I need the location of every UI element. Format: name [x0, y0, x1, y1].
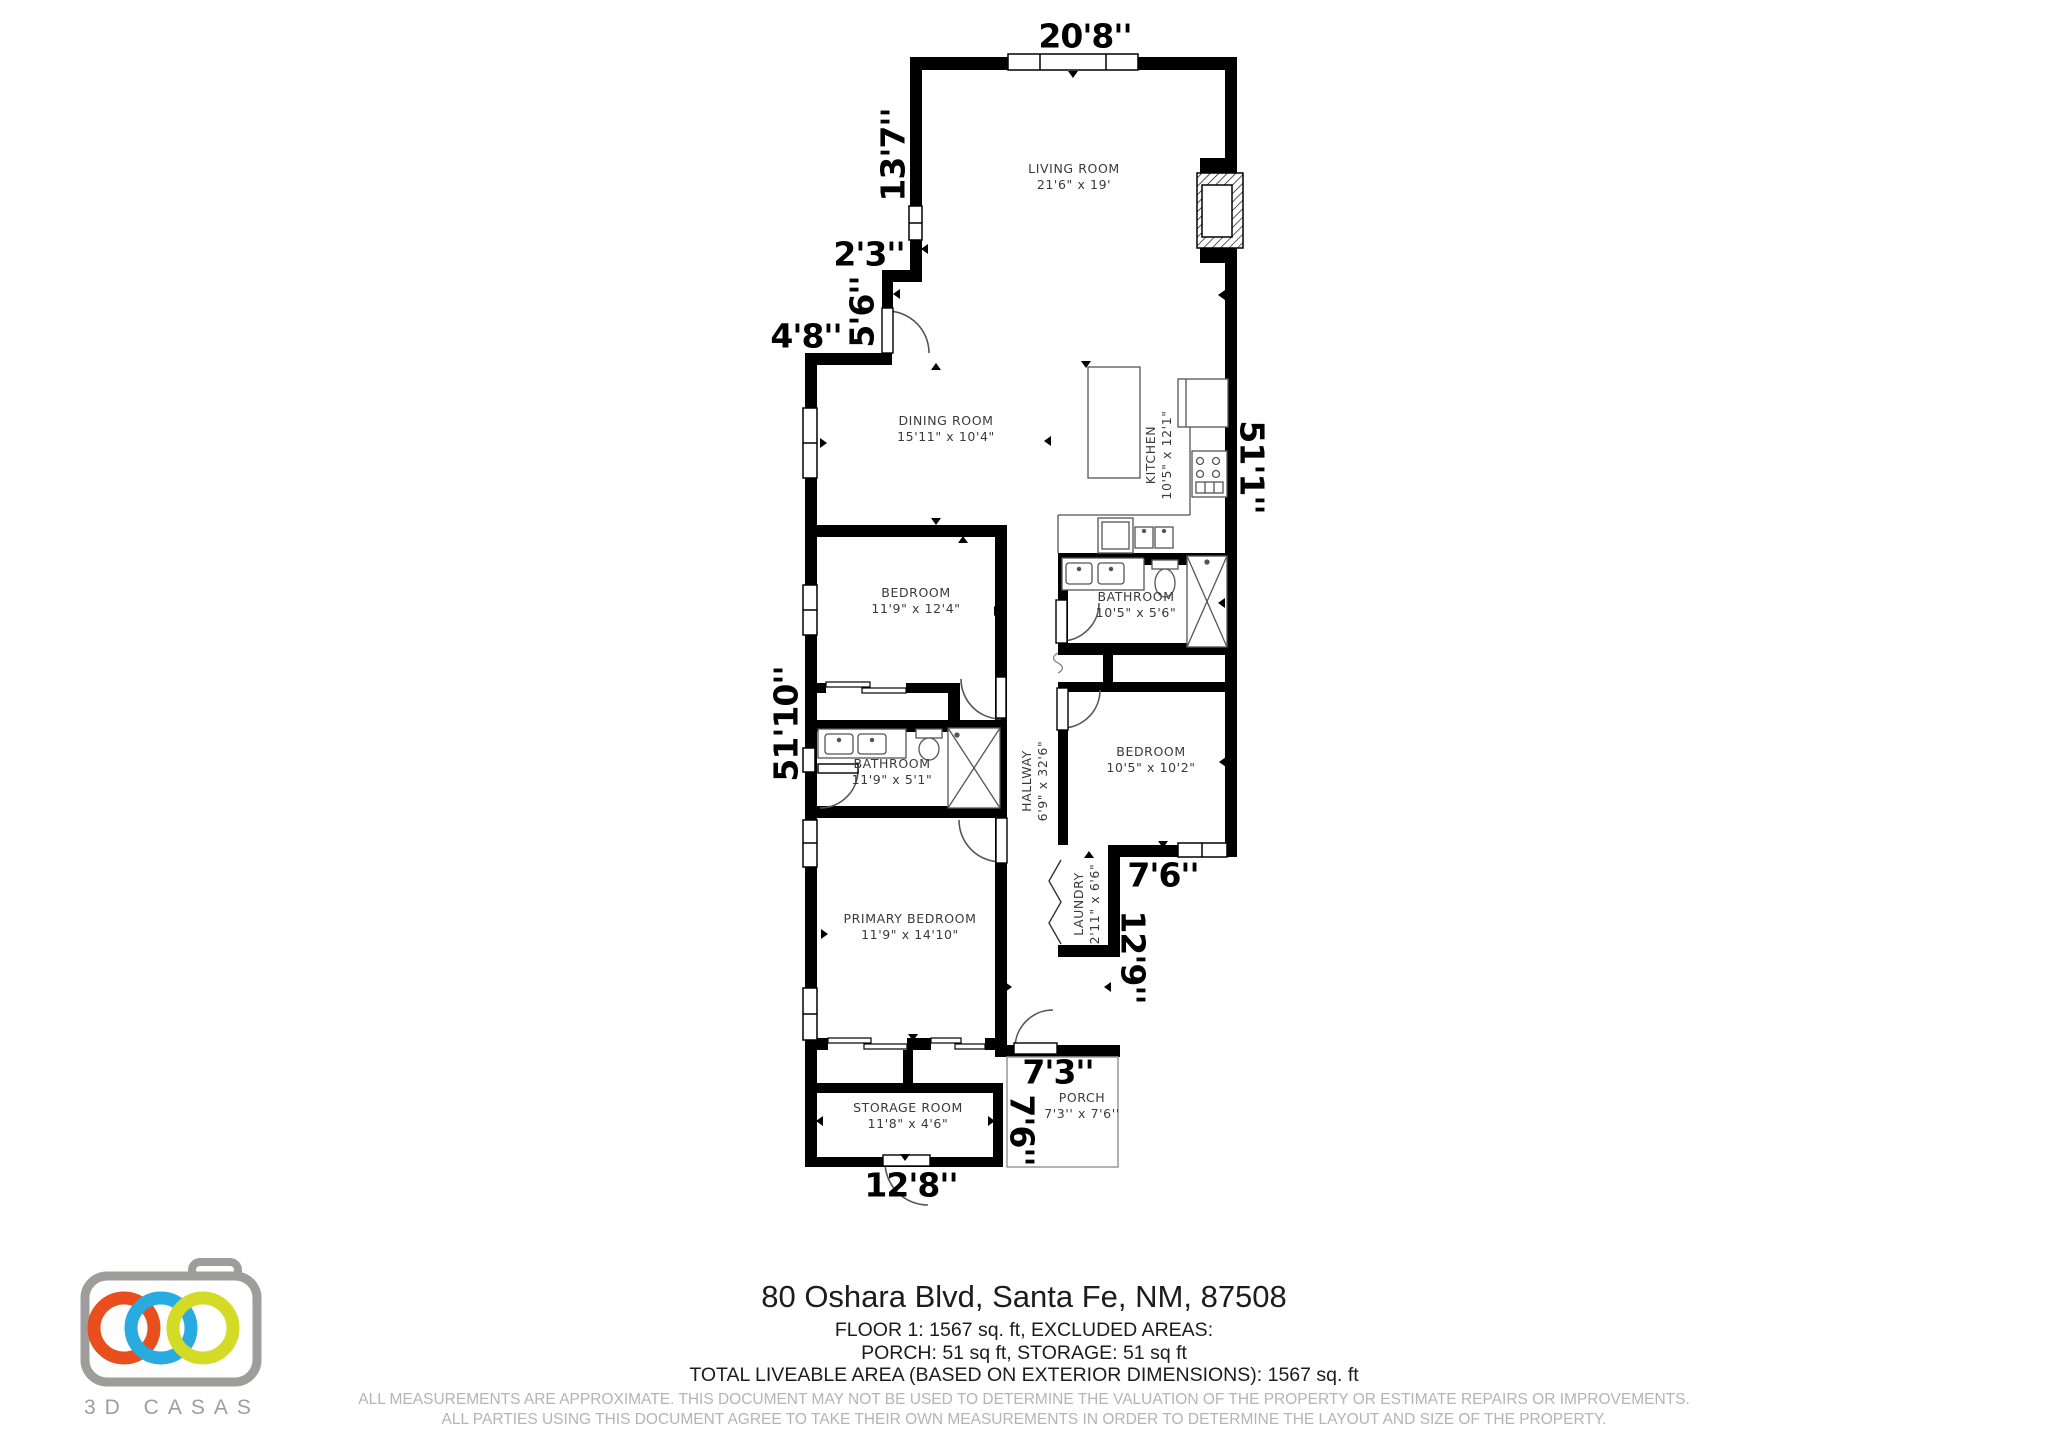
room-dimensions: 10'5" x 10'2"	[1106, 760, 1195, 775]
plan-shape	[1066, 563, 1092, 584]
brand-name: 3D CASAS	[84, 1396, 304, 1420]
wall-storage-top	[805, 1083, 1003, 1093]
room-name: PRIMARY BEDROOM	[844, 911, 977, 926]
dimension-label: 2'3''	[833, 235, 904, 274]
plan-shape	[1102, 522, 1129, 549]
plan-shape	[955, 1044, 985, 1049]
plan-shape	[955, 733, 959, 737]
wall-bedroom3-top	[1058, 682, 1227, 692]
plan-shape	[828, 1038, 871, 1043]
window-living-left	[909, 206, 922, 240]
stove	[1192, 451, 1227, 497]
dimension-label: 13'7''	[874, 108, 913, 201]
tick-arrow-icon	[821, 929, 828, 939]
camera-icon	[85, 1262, 257, 1382]
wall-closet-divider	[948, 683, 960, 725]
tick-arrow-icon	[931, 518, 941, 525]
room-label: LAUNDRY2'11" x 6'6"	[1071, 864, 1102, 945]
plan-shape	[1008, 54, 1138, 70]
plan-shape	[1197, 458, 1204, 465]
wall-break-mark	[1054, 653, 1063, 673]
room-dimensions: 11'9" x 14'10"	[861, 927, 959, 942]
dimension-label: 12'9''	[1114, 910, 1153, 1003]
plan-shape	[825, 734, 853, 754]
dimension-label: 12'8''	[864, 1166, 957, 1205]
plan-shape	[1109, 567, 1112, 570]
fireplace	[1197, 173, 1243, 248]
tick-arrow-icon	[816, 1116, 823, 1126]
window-living-top	[1008, 54, 1138, 70]
wall-storage-right	[993, 1083, 1003, 1167]
tick-arrow-icon	[921, 244, 928, 254]
tick-arrow-icon	[1104, 982, 1111, 992]
room-dimensions: 11'9" x 12'4"	[871, 601, 960, 616]
dimension-label: 20'8''	[1038, 17, 1131, 56]
room-dimensions: 11'8" x 4'6"	[868, 1116, 949, 1131]
plan-shape	[1163, 530, 1166, 533]
wall-closet2-divider	[903, 1050, 913, 1083]
room-dimensions: 21'6" x 19'	[1037, 177, 1111, 192]
room-name: BATHROOM	[853, 756, 930, 771]
plan-shape	[1205, 560, 1209, 564]
room-name: KITCHEN	[1143, 426, 1158, 484]
kitchen-sink	[1135, 527, 1173, 548]
room-name: BEDROOM	[1116, 744, 1185, 759]
dimension-label: 5'6''	[843, 276, 882, 347]
floorplan-page: LIVING ROOM21'6" x 19'DINING ROOM15'11" …	[0, 0, 2048, 1449]
room-dimensions: 10'5" x 12'1"	[1159, 410, 1174, 499]
plan-shape	[1202, 185, 1232, 237]
room-dimensions: 6'9" x 32'6"	[1035, 741, 1050, 822]
dishwasher	[1098, 518, 1133, 553]
room-dimensions: 7'3'' x 7'6''	[1044, 1106, 1120, 1121]
room-label: PRIMARY BEDROOM11'9" x 14'10"	[844, 911, 977, 942]
kitchen-island	[1088, 367, 1140, 478]
wall-dining-bedroom	[805, 525, 1007, 537]
room-name: BEDROOM	[881, 585, 950, 600]
dimension-label: 4'8''	[770, 317, 841, 356]
plan-shape	[1057, 688, 1068, 730]
plan-shape	[959, 820, 1001, 862]
tick-arrow-icon	[1044, 436, 1051, 446]
plan-shape	[882, 308, 893, 353]
bathroom1-door	[1056, 600, 1099, 643]
bedroom2-door	[961, 677, 1006, 719]
dimension-label: 7'3''	[1022, 1053, 1093, 1092]
plan-shape	[916, 729, 942, 738]
plan-shape	[1213, 471, 1220, 478]
tick-arrow-icon	[1005, 982, 1012, 992]
plan-shape	[837, 738, 840, 741]
sink	[1098, 563, 1124, 584]
floorplan-drawing: LIVING ROOM21'6" x 19'DINING ROOM15'11" …	[0, 0, 2048, 1449]
laundry-bifold-door	[1049, 860, 1061, 944]
tick-arrow-icon	[958, 536, 968, 543]
window-bedroom2-left	[803, 585, 817, 635]
plan-shape	[1197, 471, 1204, 478]
tick-arrow-icon	[820, 438, 827, 448]
window-primary-left-2	[803, 988, 817, 1040]
refrigerator	[1178, 379, 1228, 427]
plan-shape	[1152, 560, 1178, 569]
tick-arrow-icon	[931, 363, 941, 370]
tick-arrow-icon	[893, 289, 900, 299]
plan-shape	[996, 677, 1006, 718]
room-name: PORCH	[1059, 1090, 1106, 1105]
plan-shape	[1213, 458, 1220, 465]
tick-arrow-icon	[1219, 757, 1226, 767]
room-label: STORAGE ROOM11'8" x 4'6"	[853, 1100, 963, 1131]
room-label: BATHROOM11'9" x 5'1"	[852, 756, 933, 787]
tick-arrow-icon	[1084, 851, 1094, 858]
plan-shape	[870, 738, 873, 741]
fireplace-stub-bottom	[1200, 248, 1237, 263]
room-name: HALLWAY	[1019, 750, 1034, 812]
room-name: STORAGE ROOM	[853, 1100, 963, 1115]
room-label: BEDROOM10'5" x 10'2"	[1106, 744, 1195, 775]
room-dimensions: 2'11" x 6'6"	[1087, 864, 1102, 945]
closet-slider-primary-left	[828, 1036, 907, 1050]
plan-shape	[862, 688, 906, 693]
primary-bedroom-door	[959, 818, 1007, 863]
tick-arrow-icon	[1218, 290, 1225, 300]
plan-shape	[996, 818, 1007, 863]
room-name: BATHROOM	[1097, 589, 1174, 604]
plan-shape	[826, 682, 870, 687]
dimension-label: 51'1''	[1233, 420, 1272, 513]
room-name: LIVING ROOM	[1028, 161, 1120, 176]
plan-shape	[1077, 567, 1080, 570]
closet-slider-primary-right	[931, 1036, 985, 1050]
plan-shape	[1143, 530, 1146, 533]
room-dimensions: 10'5" x 5'6"	[1096, 605, 1177, 620]
room-label: DINING ROOM15'11" x 10'4"	[897, 413, 995, 444]
room-name: DINING ROOM	[898, 413, 993, 428]
window-dining-left	[803, 408, 817, 478]
dimension-label: 7'6''	[1003, 1094, 1042, 1165]
room-label: BEDROOM11'9" x 12'4"	[871, 585, 960, 616]
plan-shape	[931, 1038, 961, 1043]
wall-left-entry	[882, 270, 893, 310]
shower	[948, 728, 1000, 808]
room-label: BATHROOM10'5" x 5'6"	[1096, 589, 1177, 620]
sink	[858, 734, 886, 754]
window-primary-left-1	[803, 820, 817, 867]
front-door	[882, 308, 929, 353]
room-name: LAUNDRY	[1071, 872, 1086, 936]
wall-right-upper	[1225, 57, 1237, 158]
sink	[1066, 563, 1092, 584]
closet-slider-bedroom2	[826, 681, 906, 694]
room-dimensions: 15'11" x 10'4"	[897, 429, 995, 444]
room-label: HALLWAY6'9" x 32'6"	[1019, 741, 1050, 822]
bedroom3-door	[1057, 688, 1100, 730]
room-label: LIVING ROOM21'6" x 19'	[1028, 161, 1120, 192]
room-label: KITCHEN10'5" x 12'1"	[1143, 410, 1174, 499]
room-label: PORCH7'3'' x 7'6''	[1044, 1090, 1120, 1121]
dimension-label: 7'6''	[1127, 856, 1198, 895]
plan-shape	[864, 1044, 907, 1049]
fireplace-stub-top	[1200, 158, 1237, 173]
plan-shape	[858, 734, 886, 754]
room-dimensions: 11'9" x 5'1"	[852, 772, 933, 787]
dimension-label: 51'10''	[767, 666, 806, 781]
tick-arrow-icon	[1068, 71, 1078, 78]
plan-shape	[1098, 563, 1124, 584]
sink	[825, 734, 853, 754]
plan-shape	[1196, 482, 1223, 493]
plan-shape	[1056, 600, 1067, 643]
back-door	[1014, 1010, 1057, 1054]
